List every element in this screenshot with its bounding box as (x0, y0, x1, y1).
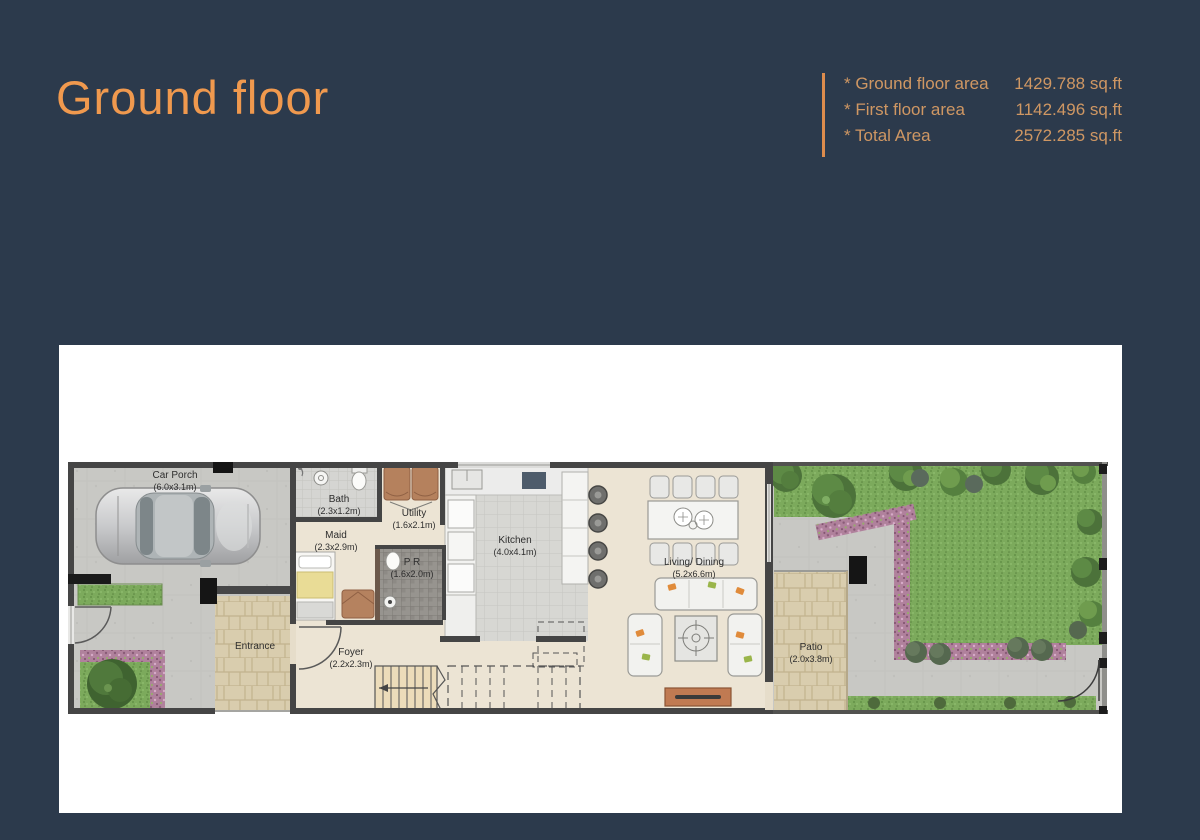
foyer-dims: (2.2x2.3m) (329, 659, 372, 669)
utility-dims: (1.6x2.1m) (392, 520, 435, 530)
toilet-icon (386, 552, 400, 570)
summary-accent-bar (822, 73, 825, 157)
tree-icon (1077, 509, 1103, 535)
dining-table (648, 501, 738, 539)
shrub-icon (1031, 639, 1053, 661)
bath-label: Bath (329, 494, 350, 505)
summary-value: 2572.285 sq.ft (1014, 123, 1122, 149)
sink-icon (314, 471, 328, 485)
powder-room-dims: (1.6x2.0m) (390, 569, 433, 579)
slide: Ground floor * Ground floor area 1429.78… (0, 0, 1200, 840)
entrance-label: Entrance (235, 641, 275, 652)
summary-rows: * Ground floor area 1429.788 sq.ft * Fir… (844, 71, 1122, 149)
shrub-icon (1069, 621, 1087, 639)
utility-label: Utility (402, 508, 426, 519)
summary-value: 1142.496 sq.ft (1016, 97, 1123, 123)
car-icon (96, 485, 260, 567)
summary-row: * Total Area 2572.285 sq.ft (844, 123, 1122, 149)
tree-icon (812, 474, 856, 518)
living-dining-dims: (5.2x6.6m) (672, 569, 715, 579)
room-entrance: Entrance (235, 641, 275, 652)
tree-icon (87, 659, 137, 709)
stool-icon (589, 514, 607, 532)
floor-plan-panel: Car Porch (6.0x3.1m) Bath (2.3x1.2m) Uti… (59, 345, 1122, 813)
summary-row: * Ground floor area 1429.788 sq.ft (844, 71, 1122, 97)
patio-label: Patio (800, 642, 823, 653)
summary-label: * Ground floor area (844, 71, 989, 97)
chair-icon (719, 476, 738, 498)
bath-dims: (2.3x1.2m) (317, 506, 360, 516)
armchair-icon (728, 614, 762, 676)
page-title: Ground floor (56, 70, 329, 125)
hedge-strip (78, 585, 162, 605)
living-dining-label: Living/ Dining (664, 557, 724, 568)
summary-row: * First floor area 1142.496 sq.ft (844, 97, 1122, 123)
tree-icon (940, 468, 968, 496)
powder-room-label: P R (404, 557, 421, 568)
floor-plan: Car Porch (6.0x3.1m) Bath (2.3x1.2m) Uti… (68, 462, 1108, 715)
kitchen-label: Kitchen (498, 535, 531, 546)
summary-label: * First floor area (844, 97, 965, 123)
shrub-icon (905, 641, 927, 663)
chair-icon (673, 476, 692, 498)
maid-dims: (2.3x2.9m) (314, 542, 357, 552)
fridge (448, 564, 474, 592)
stool-icon (589, 486, 607, 504)
foyer-label: Foyer (338, 647, 364, 658)
stool-icon (589, 542, 607, 560)
car-porch-label: Car Porch (152, 470, 197, 481)
summary-label: * Total Area (844, 123, 931, 149)
stove (522, 472, 546, 489)
washer-icon (384, 467, 410, 500)
maid-label: Maid (325, 530, 347, 541)
chair-icon (650, 476, 669, 498)
shrub-icon (929, 643, 951, 665)
summary-value: 1429.788 sq.ft (1014, 71, 1122, 97)
zone-entrance-pavers (215, 596, 293, 712)
kitchen-dims: (4.0x4.1m) (493, 547, 536, 557)
car-porch-dims: (6.0x3.1m) (153, 482, 196, 492)
zone-patio-pavers (774, 571, 846, 711)
armchair-icon (628, 614, 662, 676)
chair-icon (342, 590, 374, 618)
shrub-icon (1007, 637, 1029, 659)
tree-icon (1071, 557, 1101, 587)
stool-icon (589, 570, 607, 588)
patio-dims: (2.0x3.8m) (789, 654, 832, 664)
dryer-icon (412, 467, 438, 500)
chair-icon (696, 476, 715, 498)
tree-icon (1025, 462, 1059, 495)
toilet-icon (352, 472, 366, 490)
